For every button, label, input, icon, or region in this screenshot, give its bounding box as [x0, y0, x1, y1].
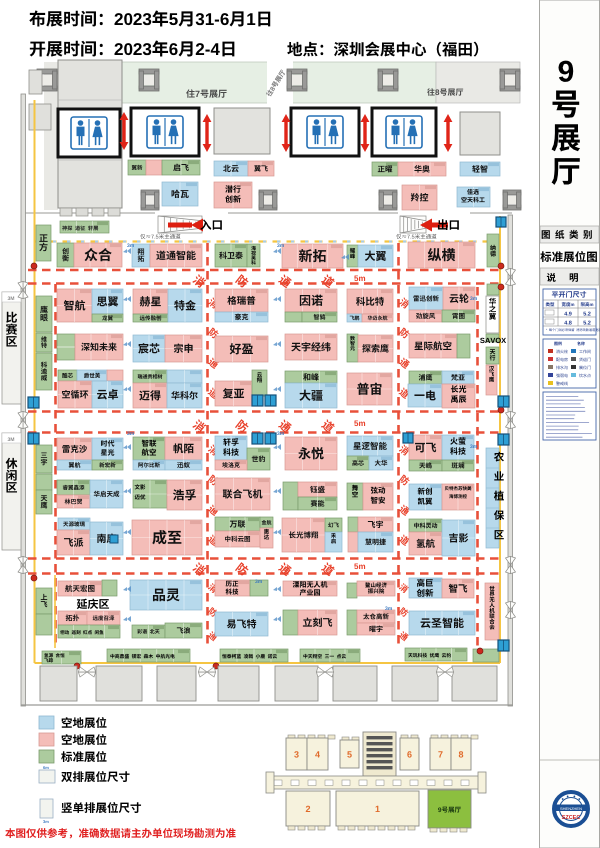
svg-text:SZCEC: SZCEC: [562, 815, 581, 821]
svg-text:SHENZHEN: SHENZHEN: [560, 806, 582, 811]
